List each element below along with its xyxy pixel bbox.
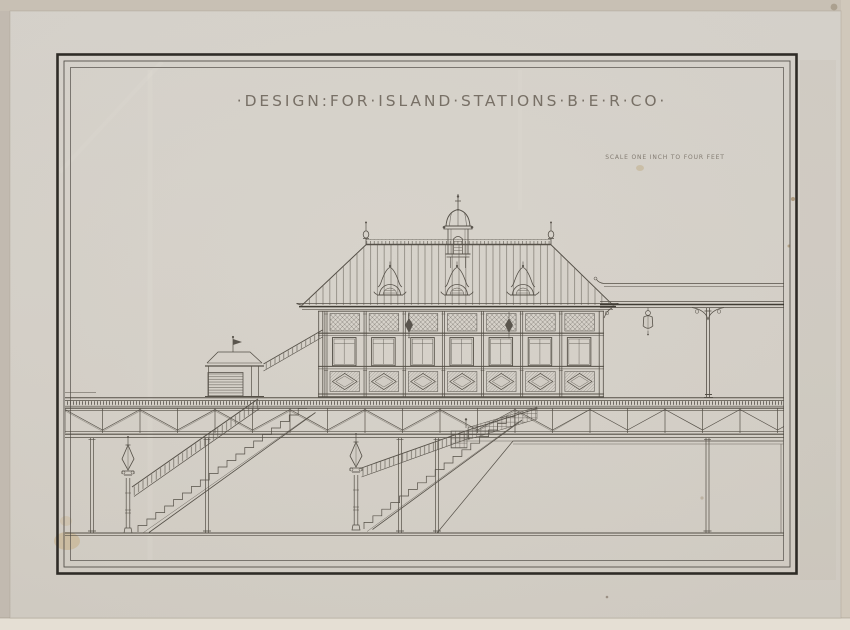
deck-dentils — [65, 401, 784, 406]
stain — [636, 165, 644, 171]
mat-bottom-strip — [0, 618, 850, 630]
drawing-canvas: ·DESIGN:FOR·ISLAND·STATIONS·B·E·R·CO· SC… — [0, 0, 850, 630]
corner-speck — [831, 4, 838, 11]
ridge-cresting — [366, 240, 551, 245]
drawing-title: ·DESIGN:FOR·ISLAND·STATIONS·B·E·R·CO· — [237, 92, 668, 110]
scale-note: SCALE ONE INCH TO FOUR FEET — [605, 154, 725, 161]
kiosk-louver-panel — [208, 373, 243, 397]
stain — [606, 596, 609, 599]
photograph-of-drawing: ·DESIGN:FOR·ISLAND·STATIONS·B·E·R·CO· SC… — [0, 0, 850, 630]
stain — [791, 197, 795, 201]
stain — [700, 496, 703, 499]
